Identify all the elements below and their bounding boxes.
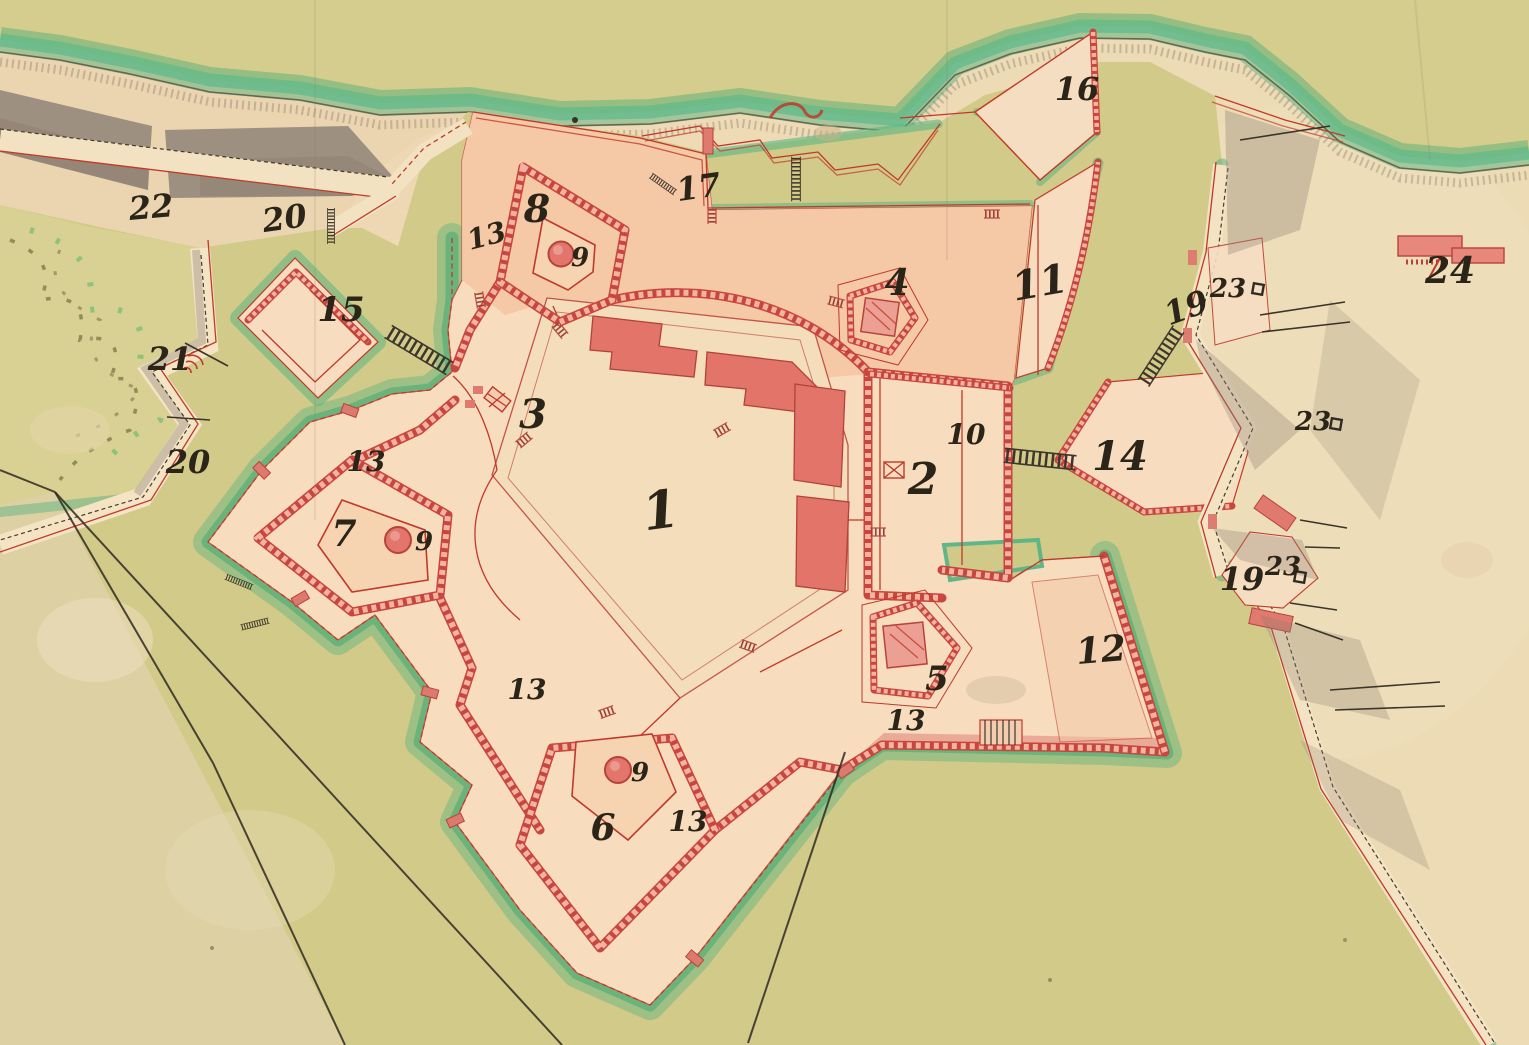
map-label-3-2: 3: [519, 391, 547, 438]
fortification-map: 1234567899910111213131313131415161719192…: [0, 0, 1529, 1045]
map-label-13-15: 13: [347, 445, 386, 478]
map-label-24-32: 24: [1424, 250, 1475, 292]
map-label-2-1: 2: [907, 454, 939, 505]
map-label-9-10: 9: [631, 758, 649, 788]
map-label-11-12: 11: [1008, 255, 1071, 311]
map-label-13-17: 13: [669, 805, 708, 838]
map-label-4-3: 4: [884, 262, 909, 304]
map-label-20-25: 20: [259, 196, 309, 240]
fortification-plan-page: 1234567899910111213131313131415161719192…: [0, 0, 1529, 1045]
map-label-5-4: 5: [925, 659, 949, 699]
map-label-8-7: 8: [523, 186, 550, 231]
map-label-19-24: 19: [1220, 560, 1265, 598]
map-label-9-8: 9: [571, 243, 589, 273]
map-label-13-16: 13: [508, 673, 547, 706]
map-label-13-18: 13: [887, 704, 926, 737]
map-label-21-27: 21: [147, 340, 193, 378]
map-label-9-9: 9: [415, 527, 433, 557]
map-label-6-5: 6: [590, 807, 615, 849]
map-label-17-22: 17: [674, 165, 723, 209]
map-label-12-13: 12: [1074, 627, 1128, 673]
south-ramp: [980, 720, 1022, 745]
map-label-16-21: 16: [1055, 70, 1100, 108]
map-label-23-29: 23: [1209, 274, 1246, 304]
bridge-17: [792, 157, 801, 202]
map-label-22-28: 22: [126, 186, 175, 228]
bridge-15-north: [328, 208, 335, 244]
map-label-7-6: 7: [331, 513, 356, 555]
map-label-10-11: 10: [947, 418, 986, 451]
map-label-23-30: 23: [1294, 407, 1331, 437]
map-label-20-26: 20: [165, 443, 211, 481]
map-label-15-20: 15: [317, 290, 364, 330]
map-label-14-19: 14: [1092, 433, 1148, 480]
map-label-23-31: 23: [1264, 552, 1301, 582]
